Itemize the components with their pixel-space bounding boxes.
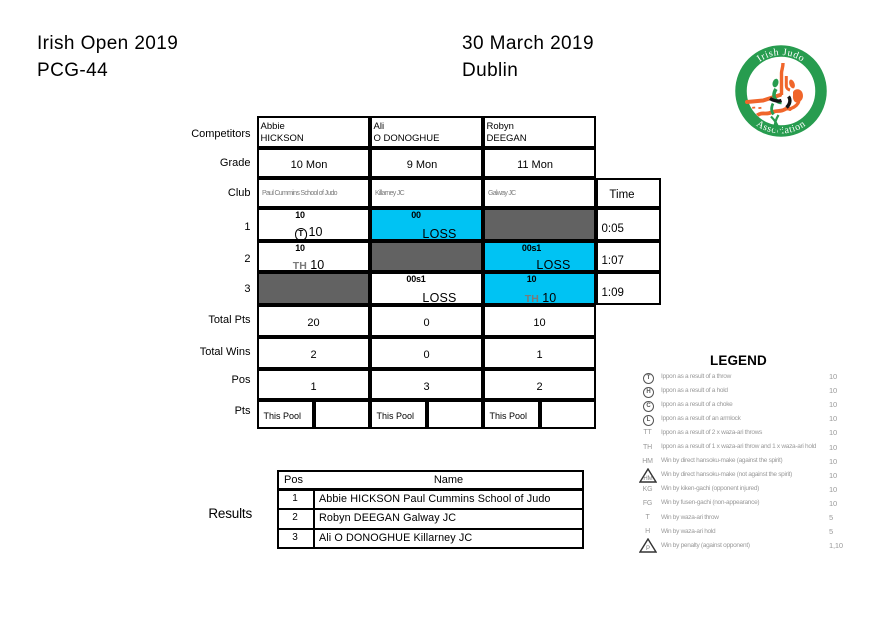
svg-text:P: P: [646, 546, 650, 552]
svg-text:HM: HM: [643, 476, 652, 482]
svg-text:Association: Association: [754, 119, 808, 137]
